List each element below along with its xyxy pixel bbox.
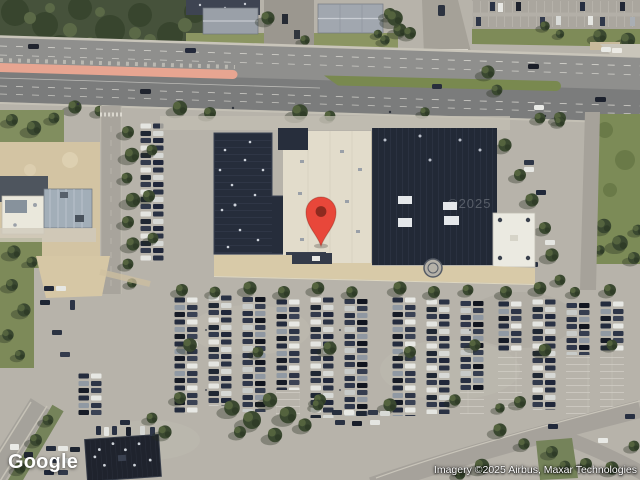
- pin-inner-circle: [316, 206, 327, 217]
- google-logo[interactable]: Google: [8, 451, 78, 474]
- pin-body: [306, 197, 336, 246]
- map-watermark: ©2025: [448, 196, 492, 211]
- location-pin-icon[interactable]: [302, 195, 340, 249]
- imagery-attribution: Imagery ©2025 Airbus, Maxar Technologies: [434, 464, 637, 476]
- satellite-map[interactable]: ©2025 Google Imagery ©2025 Airbus, Maxar…: [0, 0, 640, 480]
